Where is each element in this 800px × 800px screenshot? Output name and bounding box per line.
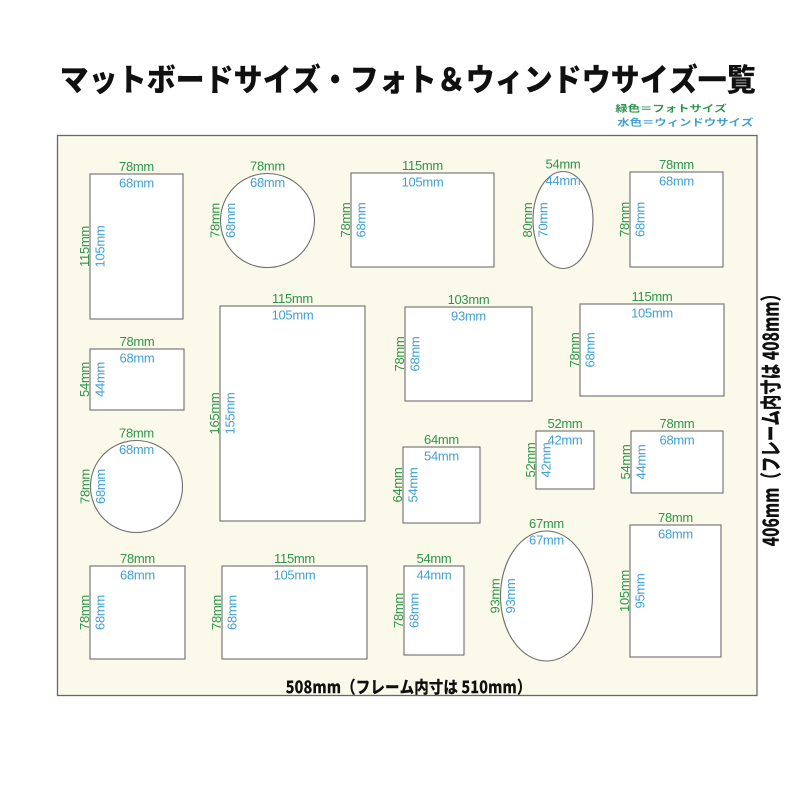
svg-text:93mm: 93mm: [488, 579, 503, 614]
svg-text:78mm: 78mm: [392, 337, 407, 372]
svg-text:78mm: 78mm: [119, 426, 154, 441]
svg-text:68mm: 68mm: [93, 595, 108, 630]
svg-text:95mm: 95mm: [633, 574, 648, 609]
svg-text:105mm: 105mm: [402, 175, 444, 190]
svg-text:67mm: 67mm: [529, 533, 564, 548]
svg-text:115mm: 115mm: [272, 291, 313, 306]
svg-text:78mm: 78mm: [567, 333, 582, 368]
svg-text:68mm: 68mm: [120, 351, 155, 366]
svg-text:54mm: 54mm: [77, 362, 92, 397]
svg-text:68mm: 68mm: [223, 203, 238, 238]
svg-text:115mm: 115mm: [402, 158, 443, 173]
svg-text:52mm: 52mm: [548, 416, 583, 431]
svg-text:44mm: 44mm: [546, 173, 581, 188]
svg-text:68mm: 68mm: [120, 568, 155, 583]
svg-text:44mm: 44mm: [93, 362, 108, 397]
svg-text:78mm: 78mm: [250, 159, 285, 174]
svg-text:68mm: 68mm: [583, 333, 598, 368]
svg-text:67mm: 67mm: [529, 516, 564, 531]
svg-text:68mm: 68mm: [354, 203, 369, 238]
svg-text:54mm: 54mm: [546, 157, 581, 172]
svg-text:78mm: 78mm: [78, 469, 93, 504]
svg-text:115mm: 115mm: [77, 226, 92, 267]
svg-text:78mm: 78mm: [119, 159, 154, 174]
svg-text:68mm: 68mm: [658, 527, 693, 542]
svg-text:80mm: 80mm: [520, 203, 535, 238]
svg-text:105mm: 105mm: [272, 308, 314, 323]
svg-text:155mm: 155mm: [223, 393, 238, 435]
svg-text:42mm: 42mm: [539, 443, 554, 478]
svg-text:105mm: 105mm: [631, 306, 673, 321]
svg-text:115mm: 115mm: [274, 551, 315, 566]
svg-text:78mm: 78mm: [120, 334, 155, 349]
svg-text:54mm: 54mm: [417, 551, 452, 566]
svg-text:64mm: 64mm: [390, 468, 405, 503]
svg-text:78mm: 78mm: [338, 203, 353, 238]
svg-text:68mm: 68mm: [250, 175, 285, 190]
svg-text:68mm: 68mm: [407, 593, 422, 628]
svg-text:68mm: 68mm: [408, 337, 423, 372]
svg-text:93mm: 93mm: [451, 309, 486, 324]
svg-text:68mm: 68mm: [660, 433, 695, 448]
svg-text:78mm: 78mm: [391, 593, 406, 628]
svg-text:44mm: 44mm: [634, 445, 649, 480]
svg-text:78mm: 78mm: [617, 202, 632, 237]
svg-text:78mm: 78mm: [77, 595, 92, 630]
svg-text:78mm: 78mm: [659, 157, 694, 172]
svg-text:93mm: 93mm: [503, 579, 518, 614]
svg-text:78mm: 78mm: [660, 416, 695, 431]
svg-text:54mm: 54mm: [618, 445, 633, 480]
svg-text:70mm: 70mm: [536, 203, 551, 238]
svg-text:68mm: 68mm: [659, 174, 694, 189]
svg-text:105mm: 105mm: [93, 226, 108, 268]
svg-text:103mm: 103mm: [448, 292, 490, 307]
svg-text:44mm: 44mm: [417, 568, 452, 583]
svg-text:68mm: 68mm: [225, 595, 240, 630]
svg-text:105mm: 105mm: [274, 568, 316, 583]
svg-text:52mm: 52mm: [523, 443, 538, 478]
svg-text:78mm: 78mm: [120, 551, 155, 566]
svg-text:115mm: 115mm: [632, 289, 673, 304]
svg-text:64mm: 64mm: [424, 432, 459, 447]
svg-text:78mm: 78mm: [209, 595, 224, 630]
svg-text:78mm: 78mm: [658, 510, 693, 525]
svg-text:165mm: 165mm: [207, 393, 222, 435]
svg-text:68mm: 68mm: [633, 202, 648, 237]
svg-text:54mm: 54mm: [424, 449, 459, 464]
svg-text:68mm: 68mm: [119, 442, 154, 457]
svg-text:68mm: 68mm: [93, 469, 108, 504]
svg-text:105mm: 105mm: [617, 570, 632, 612]
svg-text:54mm: 54mm: [406, 468, 421, 503]
svg-text:78mm: 78mm: [208, 203, 223, 238]
svg-text:68mm: 68mm: [119, 176, 154, 191]
